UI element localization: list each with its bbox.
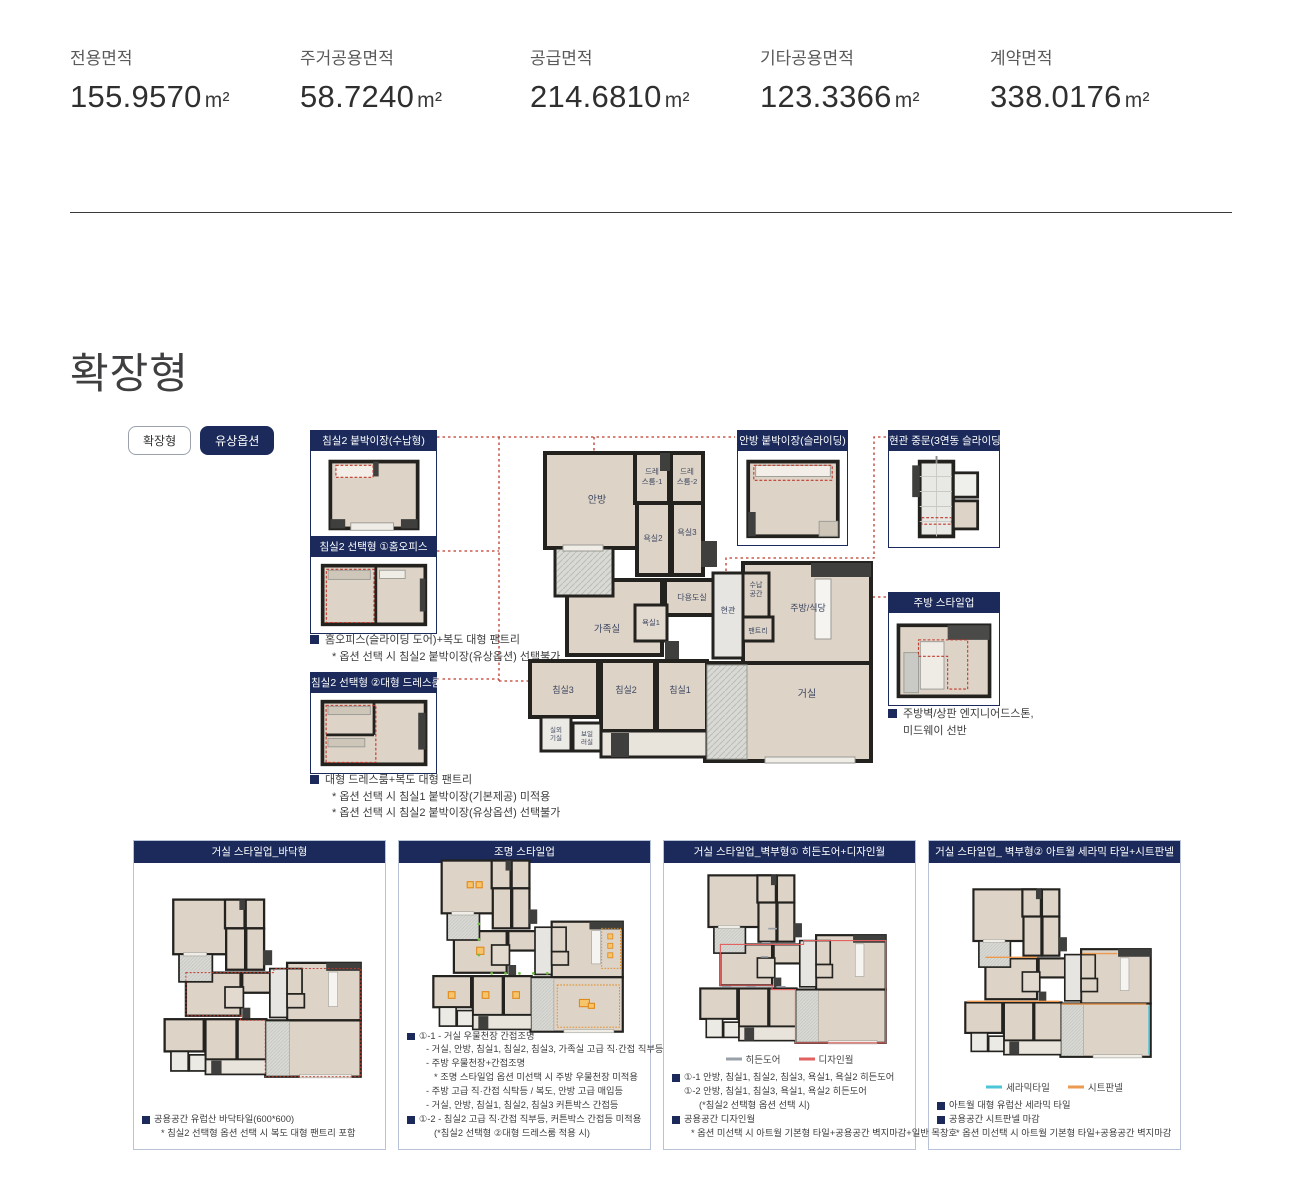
stat-residential-common-area: 주거공용면적 58.7240m² [300,44,530,115]
section-title: 확장형 [70,340,189,401]
callout-kitchen-styleup: 주방 스타일업 [888,592,1000,706]
stat-value: 155.9570m² [70,79,300,115]
room-label-boiler: 러실 [581,737,593,746]
card-note-line: ①-2 안방, 침실1, 침실3, 욕실1, 욕실2 히든도어 [672,1085,908,1099]
note-line: 대형 드레스룸+복도 대형 팬트리 [310,772,560,789]
callout-bedroom2-home-office: 침실2 선택형 ①홈오피스 [310,536,437,634]
callout-title: 주방 스타일업 [889,593,999,613]
card-living-styleup-wall2: 거실 스타일업_ 벽부형② 아트월 세라믹 타일+시트판넬 세라믹타일 [928,840,1181,1150]
stat-contract-area: 계약면적 338.0176m² [990,44,1220,115]
room-label-dressroom1: 드레 [645,467,659,476]
card-note-line: ①-1 - 거실 우물천장 간접조명 [407,1030,643,1044]
card-title: 거실 스타일업_바닥형 [134,841,385,863]
legend-label: 시트판넬 [1088,1080,1123,1094]
card-note-line: - 주방 우물천장+간접조명 [407,1057,643,1071]
room-label-bath2: 욕실2 [643,533,663,543]
stat-value: 338.0176m² [990,79,1220,115]
card-lighting-styleup: 조명 스타일업 [398,840,651,1150]
room-label-dressroom2: 스룸-2 [677,477,697,486]
room-label-bed2: 침실2 [615,685,637,695]
tab-paid-option[interactable]: 유상옵션 [200,426,274,455]
bedroom2-dressroom-notes: 대형 드레스룸+복도 대형 팬트리 * 옵션 선택 시 침실1 붙박이장(기본제… [310,772,560,822]
note-line: * 옵션 선택 시 침실1 붙박이장(기본제공) 미적용 [310,789,560,806]
design-wall-swatch [799,1057,815,1061]
legend-label: 히든도어 [746,1052,781,1066]
card-title: 거실 스타일업_ 벽부형② 아트월 세라믹 타일+시트판넬 [929,841,1180,863]
callout-title: 침실2 선택형 ①홈오피스 [311,537,436,557]
room-label-master: 안방 [588,494,606,506]
card-note-line: 공용공간 시트판넬 마감 [937,1113,1173,1127]
plan-type-toggle: 확장형 유상옵션 [128,426,274,455]
card-living-styleup-wall1: 거실 스타일업_벽부형① 히든도어+디자인월 히든도어 디자인월 [663,840,916,1150]
divider [70,212,1232,213]
card-plan-ceramic-sheet [929,863,1180,1080]
card-notes: ①-1 - 거실 우물천장 간접조명 - 거실, 안방, 침실1, 침실2, 침… [399,1028,650,1150]
room-label-utility: 다용도실 [677,592,706,602]
room-label-outdoor-unit: 기실 [550,733,562,742]
note-line: 주방벽/상판 엔지니어드스톤, [888,706,1034,723]
legend-design-wall: 디자인월 [799,1052,854,1066]
room-label-outdoor-unit: 실외 [550,725,562,734]
card-note-line: * 조명 스타일업 옵션 미선택 시 주방 우물천장 미적용 [407,1071,643,1085]
card-notes: 공용공간 유럽산 바닥타일(600*600) * 침실2 선택형 옵션 선택 시… [134,1111,385,1149]
card-plan-hidden-door [664,863,915,1052]
card-note-line: - 거실, 안방, 침실1, 침실2, 침실3 커튼박스 간접등 [407,1099,643,1113]
legend-ceramic-tile: 세라믹타일 [986,1080,1050,1094]
callout-plan-thumbnail [311,557,436,633]
legend-hidden-door: 히든도어 [726,1052,781,1066]
ceramic-tile-swatch [986,1085,1002,1089]
card-note-line: ①-2 - 침실2 고급 직·간접 직부등, 커튼박스 간접등 미적용 [407,1113,643,1127]
callout-plan-thumbnail [889,451,999,547]
card-plan-floor-tile [134,863,385,1111]
card-title: 거실 스타일업_벽부형① 히든도어+디자인월 [664,841,915,863]
legend-label: 디자인월 [819,1052,854,1066]
room-label-entrance: 현관 [721,605,736,615]
stat-other-common-area: 기타공용면적 123.3366m² [760,44,990,115]
room-label-storage: 공간 [750,589,763,598]
card-note-line: * 옵션 미선택 시 아트월 기본형 타일+공용공간 벽지마감+일반 목창호 [672,1127,908,1141]
stat-label: 공급면적 [530,44,760,69]
callout-plan-thumbnail [889,613,999,705]
main-floor-plan: 안방 드레 스룸-1 드레 스룸-2 욕실2 욕실3 다용도실 가족실 욕실1 … [515,445,875,765]
area-stats: 전용면적 155.9570m² 주거공용면적 58.7240m² 공급면적 21… [70,44,1220,115]
note-line: 미드웨이 선반 [888,723,1034,740]
note-line: * 옵션 선택 시 침실2 붙박이장(유상옵션) 선택불가 [310,805,560,822]
card-plan-lighting [399,863,650,1028]
card-note-line: (*침실2 선택형 ②대형 드레스룸 적용 시) [407,1127,643,1141]
callout-bedroom2-wardrobe: 침실2 붙박이장(수납형) [310,430,437,540]
stat-supply-area: 공급면적 214.6810m² [530,44,760,115]
tab-expansion-type[interactable]: 확장형 [128,426,191,455]
card-note-line: * 침실2 선택형 옵션 선택 시 복도 대형 팬트리 포함 [142,1127,378,1141]
stat-label: 계약면적 [990,44,1220,69]
card-note-line: ①-1 안방, 침실1, 침실2, 침실3, 욕실1, 욕실2 히든도어 [672,1071,908,1085]
card-note-line: - 거실, 안방, 침실1, 침실2, 침실3, 가족실 고급 직·간접 직부등 [407,1043,643,1057]
room-label-boiler: 보일 [581,729,593,738]
room-label-bed3: 침실3 [552,685,574,695]
room-label-dressroom2: 드레 [680,467,694,476]
callout-title: 침실2 선택형 ②대형 드레스룸 [311,673,436,693]
room-label-family: 가족실 [594,624,620,635]
card-legend: 세라믹타일 시트판넬 [929,1080,1180,1094]
stat-value: 214.6810m² [530,79,760,115]
card-note-line: * 옵션 미선택 시 아트월 기본형 타일+공용공간 벽지마감 [937,1127,1173,1141]
room-label-pantry: 팬트리 [748,626,767,635]
room-label-bath3: 욕실3 [677,527,697,537]
stat-label: 주거공용면적 [300,44,530,69]
legend-sheet-panel: 시트판넬 [1068,1080,1123,1094]
room-label-kitchen: 주방/식당 [790,603,826,613]
legend-label: 세라믹타일 [1006,1080,1050,1094]
sheet-panel-swatch [1068,1085,1084,1089]
hidden-door-swatch [726,1057,742,1061]
card-notes: ①-1 안방, 침실1, 침실2, 침실3, 욕실1, 욕실2 히든도어 ①-2… [664,1069,915,1149]
stat-exclusive-area: 전용면적 155.9570m² [70,44,300,115]
callout-bedroom2-dressroom: 침실2 선택형 ②대형 드레스룸 [310,672,437,774]
callout-plan-thumbnail [311,451,436,539]
room-label-storage: 수납 [750,580,763,589]
styleup-cards: 거실 스타일업_바닥형 공용공간 유럽산 바닥타일(600*600) * 침실2… [133,840,1181,1150]
stat-value: 58.7240m² [300,79,530,115]
stat-value: 123.3366m² [760,79,990,115]
card-notes: 아트월 대형 유럽산 세라믹 타일 공용공간 시트판넬 마감 * 옵션 미선택 … [929,1097,1180,1149]
card-note-line: 아트월 대형 유럽산 세라믹 타일 [937,1099,1173,1113]
callout-entrance-door: 현관 중문(3연동 슬라이딩) [888,430,1000,548]
card-note-line: (*침실2 선택형 옵션 선택 시) [672,1099,908,1113]
kitchen-styleup-notes: 주방벽/상판 엔지니어드스톤, 미드웨이 선반 [888,706,1034,739]
stat-label: 기타공용면적 [760,44,990,69]
card-living-styleup-floor: 거실 스타일업_바닥형 공용공간 유럽산 바닥타일(600*600) * 침실2… [133,840,386,1150]
card-note-line: 공용공간 디자인월 [672,1113,908,1127]
stat-label: 전용면적 [70,44,300,69]
callout-plan-thumbnail [311,693,436,773]
card-legend: 히든도어 디자인월 [664,1052,915,1066]
callout-title: 현관 중문(3연동 슬라이딩) [889,431,999,451]
callout-title: 침실2 붙박이장(수납형) [311,431,436,451]
room-label-dressroom1: 스룸-1 [642,477,662,486]
room-label-bed1: 침실1 [669,685,691,695]
room-label-living: 거실 [798,688,816,700]
card-note-line: - 주방 고급 직·간접 식탁등 / 복도, 안방 고급 매입등 [407,1085,643,1099]
room-label-bath1: 욕실1 [642,617,660,627]
card-note-line: 공용공간 유럽산 바닥타일(600*600) [142,1113,378,1127]
